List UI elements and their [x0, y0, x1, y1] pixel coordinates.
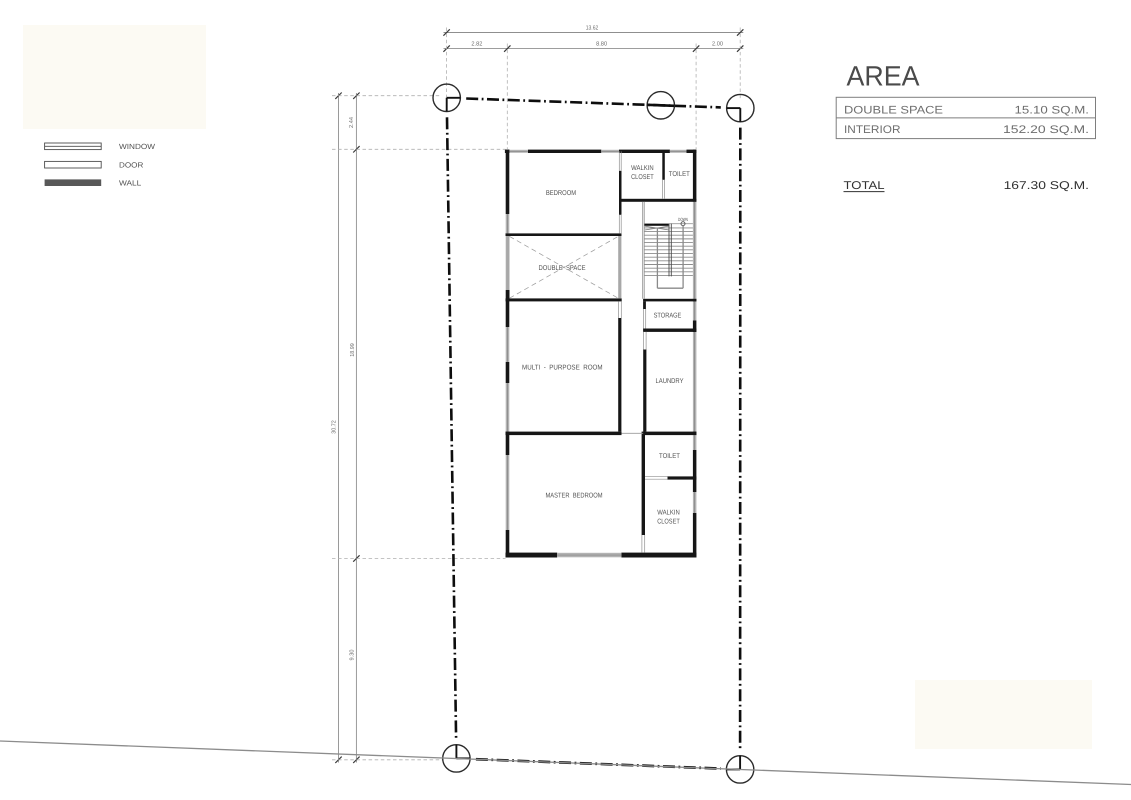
svg-text:STORAGE: STORAGE — [654, 312, 682, 319]
svg-text:BEDROOM: BEDROOM — [546, 190, 576, 197]
svg-text:9.30: 9.30 — [349, 650, 356, 661]
svg-text:2.44: 2.44 — [348, 116, 355, 128]
svg-text:15.10 SQ.M.: 15.10 SQ.M. — [1015, 104, 1090, 116]
svg-text:DOWN: DOWN — [678, 217, 688, 222]
svg-text:TOILET: TOILET — [659, 453, 681, 460]
svg-text:8.80: 8.80 — [596, 41, 608, 48]
svg-text:DOUBLE SPACE: DOUBLE SPACE — [844, 104, 943, 116]
svg-text:CLOSET: CLOSET — [631, 174, 654, 181]
svg-text:13.62: 13.62 — [586, 24, 599, 31]
svg-text:WINDOW: WINDOW — [119, 142, 156, 151]
svg-text:CLOSET: CLOSET — [657, 518, 680, 525]
svg-text:LAUNDRY: LAUNDRY — [656, 378, 684, 385]
svg-text:152.20 SQ.M.: 152.20 SQ.M. — [1003, 124, 1089, 136]
svg-text:DOOR: DOOR — [119, 161, 144, 170]
svg-text:TOILET: TOILET — [669, 171, 691, 178]
svg-text:INTERIOR: INTERIOR — [844, 124, 901, 136]
svg-text:MULTI - PURPOSE ROOM: MULTI - PURPOSE ROOM — [522, 364, 603, 371]
svg-text:TOTAL: TOTAL — [844, 180, 885, 192]
svg-text:18.99: 18.99 — [349, 343, 356, 357]
svg-text:167.30 SQ.M.: 167.30 SQ.M. — [1004, 180, 1089, 192]
svg-text:DOUBLE SPACE: DOUBLE SPACE — [539, 265, 586, 272]
svg-text:MASTER BEDROOM: MASTER BEDROOM — [546, 492, 603, 499]
svg-text:WALKIN: WALKIN — [631, 165, 654, 172]
svg-text:AREA: AREA — [847, 61, 920, 92]
svg-text:2.00: 2.00 — [712, 41, 724, 48]
svg-text:2.82: 2.82 — [471, 41, 483, 48]
svg-text:WALL: WALL — [119, 179, 141, 188]
svg-text:WALKIN: WALKIN — [657, 510, 680, 517]
svg-text:30.72: 30.72 — [330, 420, 337, 434]
